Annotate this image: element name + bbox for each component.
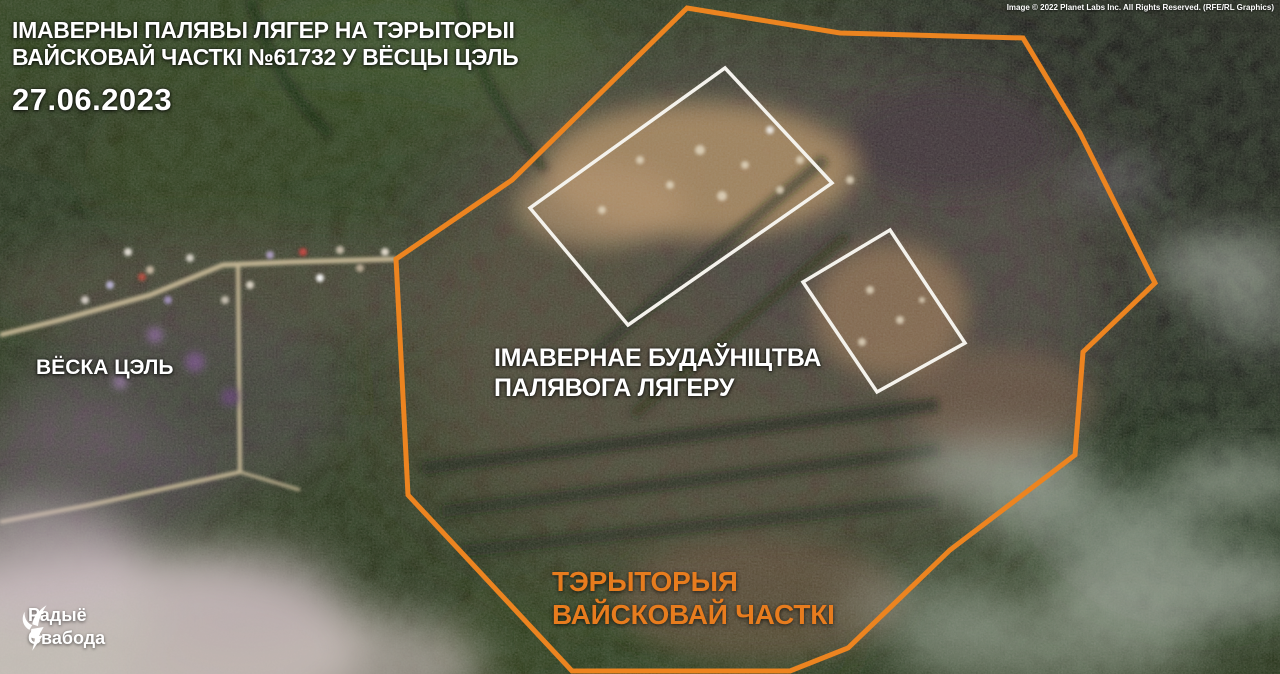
image-credit: Image © 2022 Planet Labs Inc. All Rights…: [1007, 3, 1274, 12]
construction-label-line-2: ПАЛЯВОГА ЛЯГЕРУ: [494, 374, 821, 404]
village-label: ВЁСКА ЦЭЛЬ: [36, 356, 174, 381]
headline: ІМАВЕРНЫ ПАЛЯВЫ ЛЯГЕР НА ТЭРЫТОРЫІ ВАЙСК…: [12, 17, 518, 71]
territory-label-line-2: ВАЙСКОВАЙ ЧАСТКІ: [552, 598, 835, 631]
construction-label: ІМАВЕРНАЕ БУДАЎНІЦТВА ПАЛЯВОГА ЛЯГЕРУ: [494, 344, 821, 403]
rferl-logo: Радыё Свабода: [18, 604, 105, 651]
territory-label-line-1: ТЭРЫТОРЫЯ: [552, 565, 835, 598]
headline-line-2: ВАЙСКОВАЙ ЧАСТКІ №61732 У ВЁСЦЫ ЦЭЛЬ: [12, 44, 518, 71]
camp-highlight-small: [803, 230, 965, 392]
territory-label: ТЭРЫТОРЫЯ ВАЙСКОВАЙ ЧАСТКІ: [552, 565, 835, 631]
image-date: 27.06.2023: [12, 82, 172, 119]
headline-line-1: ІМАВЕРНЫ ПАЛЯВЫ ЛЯГЕР НА ТЭРЫТОРЫІ: [12, 17, 518, 44]
annotated-satellite-graphic: ІМАВЕРНЫ ПАЛЯВЫ ЛЯГЕР НА ТЭРЫТОРЫІ ВАЙСК…: [0, 0, 1280, 674]
construction-label-line-1: ІМАВЕРНАЕ БУДАЎНІЦТВА: [494, 344, 821, 374]
camp-highlight-large: [530, 68, 832, 325]
